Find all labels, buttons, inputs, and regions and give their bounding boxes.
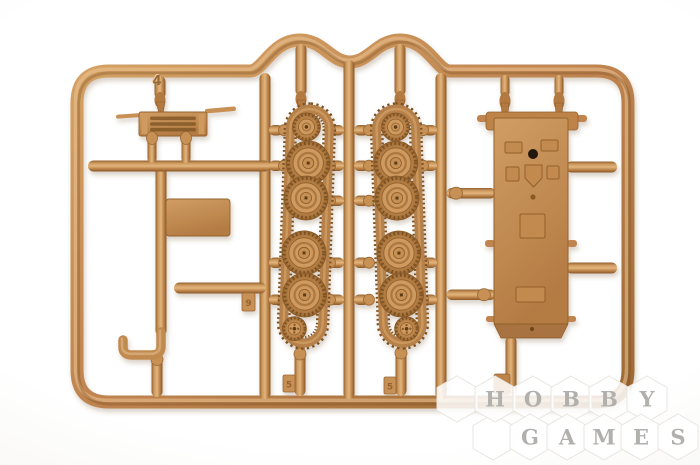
- gate-tab-number: 9: [245, 299, 251, 309]
- hexagon-cell: O: [513, 376, 553, 422]
- gate-bulb: [478, 289, 491, 301]
- runner-horizontal: [88, 161, 270, 172]
- grille-rod-left: [116, 113, 142, 119]
- runner-vertical: [395, 44, 406, 96]
- engine-grille-part: [116, 106, 236, 163]
- runner-vertical: [296, 44, 307, 96]
- grille-rod-right: [205, 106, 236, 113]
- gate-tab-number: 5: [286, 381, 292, 391]
- tow-hook-part: [123, 332, 161, 355]
- runner-vertical: [344, 60, 355, 399]
- watermark-letter: B: [600, 387, 618, 412]
- hull-panel: [547, 166, 559, 179]
- watermark-letter: O: [524, 387, 542, 412]
- hull-hole: [528, 149, 538, 159]
- watermark-letter: A: [558, 425, 576, 450]
- gate-bulb: [147, 132, 158, 145]
- frame-number: 4: [152, 74, 161, 89]
- watermark-letter: Y: [639, 387, 656, 412]
- hexagon-cell: M: [584, 414, 624, 460]
- watermark-letter: E: [633, 425, 649, 450]
- runner-horizontal: [566, 162, 617, 173]
- track-run-right-part: [372, 108, 425, 343]
- watermark-letter: S: [670, 425, 685, 450]
- runner-vertical: [260, 73, 271, 399]
- runner-vertical: [156, 164, 167, 336]
- hull-rivet: [530, 194, 535, 199]
- hexagon-cell: G: [510, 414, 550, 460]
- watermark-letter: G: [521, 425, 539, 450]
- drive-sprocket: [292, 112, 321, 141]
- grille-slat: [150, 117, 196, 121]
- hull-panel: [520, 214, 545, 238]
- barrel-rod-part: [174, 283, 266, 294]
- hull-panel: [505, 142, 522, 153]
- gate-bulb: [450, 187, 463, 199]
- idler-wheel: [282, 316, 307, 341]
- hexagon-cell: A: [547, 414, 587, 460]
- gate-bulb: [181, 132, 192, 145]
- hobbygames-watermark: H O B B Y G A M: [437, 376, 698, 460]
- hull-part: [477, 112, 587, 338]
- hull-skirt: [494, 324, 568, 338]
- drive-sprocket: [381, 113, 410, 142]
- watermark-letter: M: [592, 425, 615, 450]
- hexagon-cell: E: [621, 414, 661, 460]
- grille-slat: [150, 128, 196, 132]
- hexagon-cell: B: [551, 376, 591, 422]
- watermark-letter: B: [562, 387, 580, 412]
- runner-horizontal: [566, 263, 617, 274]
- hull-rivet: [530, 327, 534, 331]
- track-run-left-part: [279, 108, 333, 343]
- grille-slat: [150, 122, 196, 126]
- runner-vertical: [436, 73, 447, 399]
- gate-bulb: [294, 348, 306, 360]
- hexagon-cell: S: [658, 414, 698, 460]
- gate-tab-number: 5: [387, 383, 393, 393]
- sprue: 9 5 5 4 4: [76, 38, 630, 404]
- frame-number-mark: 4 4: [152, 73, 162, 89]
- hull-panel: [506, 167, 519, 181]
- grille-cap: [142, 114, 148, 134]
- hull-panel: [516, 287, 545, 302]
- hull-panel: [541, 140, 558, 151]
- watermark-letter: H: [485, 387, 505, 412]
- flat-plate-part: [166, 199, 230, 236]
- idler-wheel: [394, 316, 419, 341]
- sprue-photo-canvas: 9 5 5 4 4 H O B: [0, 0, 700, 465]
- photo-of-model-sprue: 9 5 5 4 4 H O B: [0, 0, 700, 465]
- grille-cap: [199, 114, 205, 134]
